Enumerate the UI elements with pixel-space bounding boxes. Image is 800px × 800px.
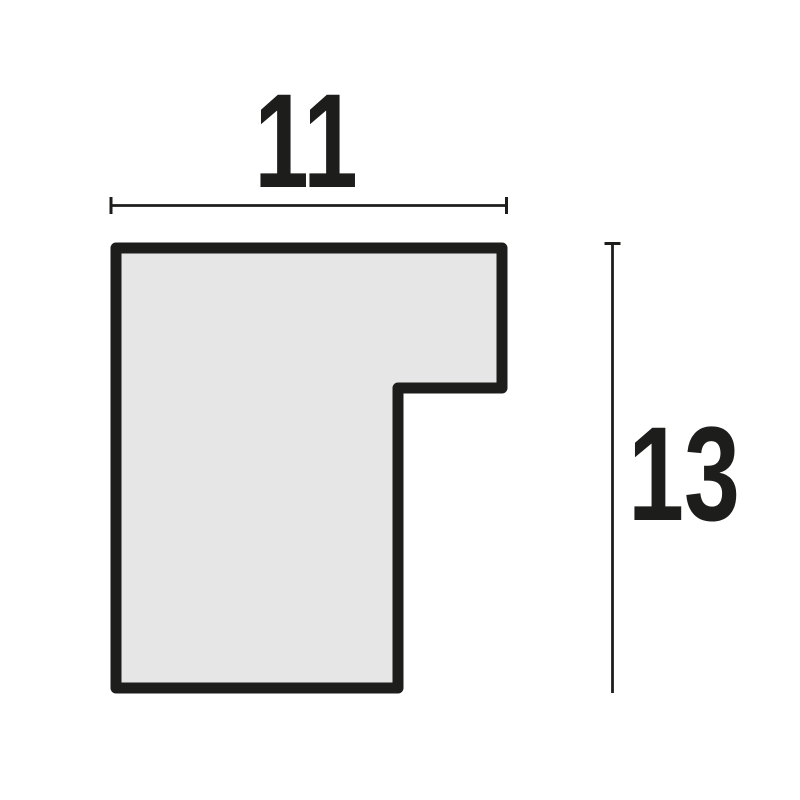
profile-drawing-svg: 11 13 [0, 0, 800, 800]
width-dimension-label: 11 [254, 66, 357, 216]
height-dimension-label: 13 [628, 400, 740, 549]
drawing-stage: 11 13 [0, 0, 800, 800]
